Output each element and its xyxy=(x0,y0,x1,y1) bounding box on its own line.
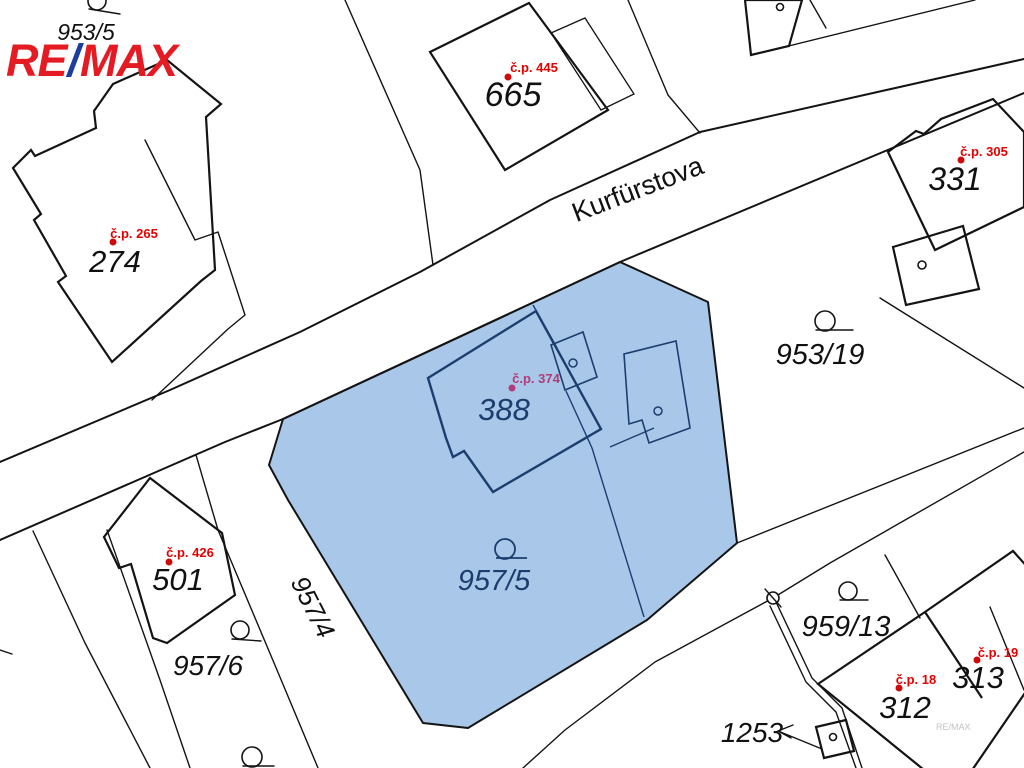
remax-logo-re: RE xyxy=(6,35,67,86)
parcel-label-1253: 1253 xyxy=(721,717,784,748)
map-canvas: 953/5 274 č.p. 265 665 č.p. 445 Kurfürst… xyxy=(0,0,1024,768)
building-331-annex-ring xyxy=(918,261,926,269)
building-331-annex-outline xyxy=(893,226,979,305)
cp-label-19: č.p. 19 xyxy=(978,645,1018,660)
parcel-label-953-19: 953/19 xyxy=(776,339,865,371)
cadastral-map: 953/5 274 č.p. 265 665 č.p. 445 Kurfürst… xyxy=(0,0,1024,768)
building-label-665: 665 xyxy=(485,76,542,114)
remax-logo-max: MAX xyxy=(80,35,177,86)
watermark: RE/MAX xyxy=(936,722,971,732)
remax-logo-slash: / xyxy=(67,35,81,86)
building-274-outline xyxy=(13,60,221,362)
building-1253-ring xyxy=(830,734,837,741)
cp-label-374: č.p. 374 xyxy=(512,371,560,386)
cp-label-18: č.p. 18 xyxy=(896,672,936,687)
building-label-312: 312 xyxy=(879,690,931,725)
building-label-331: 331 xyxy=(928,161,981,197)
building-top-small-ring xyxy=(777,4,784,11)
cp-label-445: č.p. 445 xyxy=(510,60,558,75)
building-top-small-outline xyxy=(745,0,802,55)
parcel-label-957-5: 957/5 xyxy=(458,565,531,597)
building-label-274: 274 xyxy=(88,244,141,279)
street-label-kurfurstova: Kurfürstova xyxy=(568,150,709,228)
remax-logo: RE/MAX xyxy=(6,38,177,83)
cp-label-265: č.p. 265 xyxy=(110,226,158,241)
cp-label-305: č.p. 305 xyxy=(960,144,1008,159)
parcel-label-957-6: 957/6 xyxy=(173,650,243,681)
parcel-label-959-13: 959/13 xyxy=(802,611,891,643)
building-665-annex-outline xyxy=(551,18,634,110)
building-label-313: 313 xyxy=(952,660,1004,695)
cp-label-426: č.p. 426 xyxy=(166,545,214,560)
building-label-501: 501 xyxy=(152,562,204,597)
building-label-388: 388 xyxy=(478,392,530,427)
parcel-label-957-4: 957/4 xyxy=(285,571,341,643)
